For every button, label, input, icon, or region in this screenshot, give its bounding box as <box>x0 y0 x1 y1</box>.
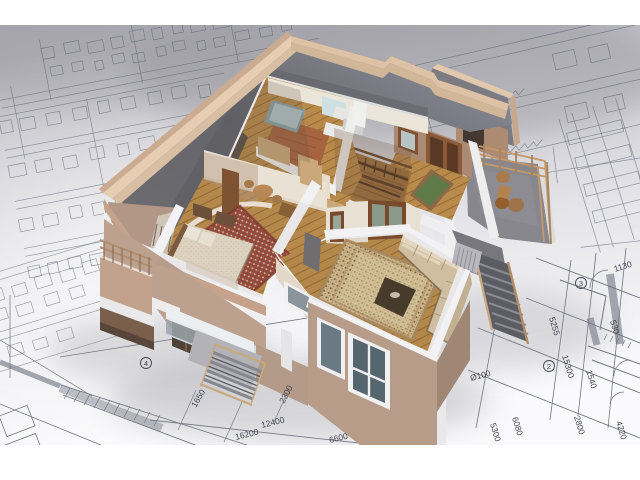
svg-text:3: 3 <box>579 279 583 288</box>
svg-text:4: 4 <box>144 359 148 368</box>
svg-text:2: 2 <box>547 362 551 371</box>
